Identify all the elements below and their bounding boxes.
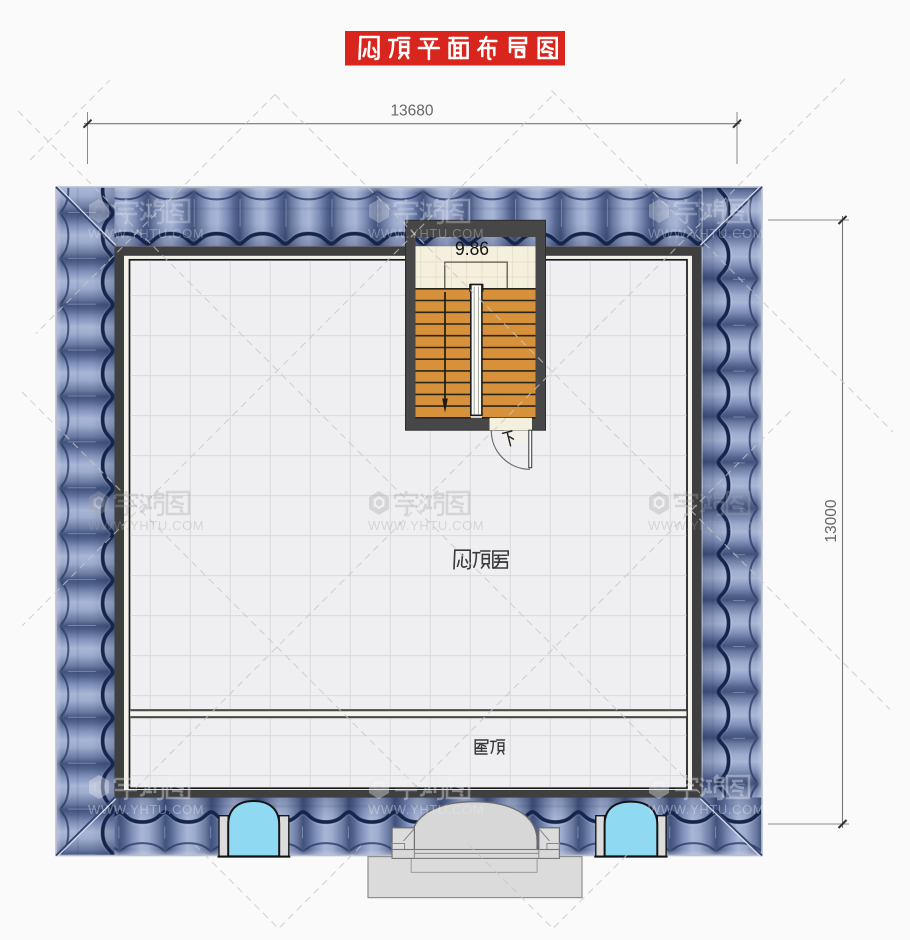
svg-text:13000: 13000 — [823, 499, 840, 542]
svg-text:13680: 13680 — [390, 103, 433, 120]
svg-text:9.86: 9.86 — [455, 238, 489, 260]
